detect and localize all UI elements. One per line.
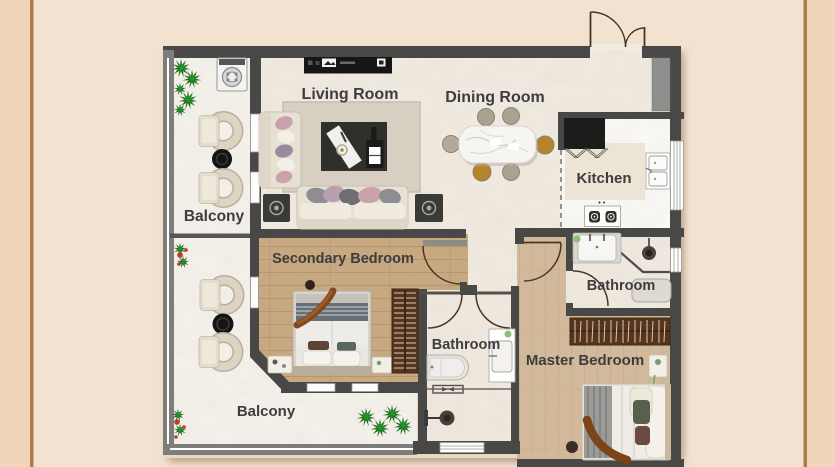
svg-text:Bathroom: Bathroom [432,337,500,353]
svg-text:Dining Room: Dining Room [445,89,545,106]
svg-text:Bathroom: Bathroom [587,278,655,294]
svg-text:Living Room: Living Room [302,86,399,103]
svg-text:Secondary Bedroom: Secondary Bedroom [272,251,414,267]
svg-text:Balcony: Balcony [184,208,245,225]
svg-text:Kitchen: Kitchen [576,170,631,187]
svg-text:Master Bedroom: Master Bedroom [526,352,644,369]
svg-text:Balcony: Balcony [237,403,296,420]
